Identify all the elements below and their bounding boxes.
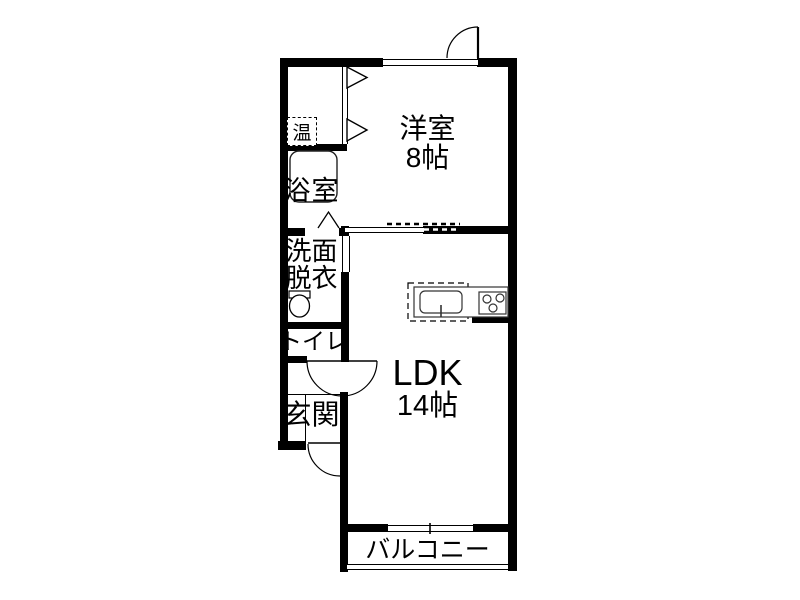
wall-kitchen-stub bbox=[472, 317, 517, 323]
wall-ldk-bottom-east bbox=[473, 524, 517, 532]
wall-western-room-ldk bbox=[423, 226, 508, 234]
floorplan-canvas: 温 bbox=[0, 0, 800, 600]
wall-top-west-segment bbox=[280, 58, 383, 67]
room-label-washroom: 洗面 脱衣 bbox=[281, 238, 342, 292]
ldk-size: 14帖 bbox=[397, 390, 458, 422]
western-room-name: 洋室 bbox=[399, 113, 455, 144]
washbasin-icon bbox=[289, 291, 310, 317]
washroom-name-line2: 脱衣 bbox=[285, 263, 337, 293]
wall-toilet-hall bbox=[280, 356, 307, 363]
kitchen-counter bbox=[408, 283, 508, 321]
western-room-size: 8帖 bbox=[406, 142, 450, 173]
washroom-name-line1: 洗面 bbox=[285, 236, 337, 266]
water-heater-label: 温 bbox=[292, 118, 311, 145]
wall-right-outer bbox=[508, 58, 517, 571]
room-label-ldk: LDK 14帖 bbox=[347, 354, 508, 422]
window-top-opening bbox=[383, 59, 478, 66]
room-label-toilet: トイレ bbox=[279, 330, 344, 354]
ldk-name: LDK bbox=[392, 352, 462, 393]
balcony-railing bbox=[347, 564, 508, 570]
stove-icon bbox=[479, 292, 506, 314]
entrance-step-line bbox=[283, 394, 341, 395]
balcony-sliding-window bbox=[388, 525, 473, 532]
wall-entrance-bottom bbox=[278, 441, 306, 450]
wall-bathroom-washroom-left bbox=[280, 228, 305, 236]
door-opening-washroom-ldk bbox=[342, 236, 350, 272]
bathroom-folding-door-icon bbox=[318, 212, 339, 228]
room-label-balcony: バルコニー bbox=[347, 537, 508, 563]
floorplan-symbols bbox=[0, 0, 800, 600]
sliding-door-track-western-ldk bbox=[345, 227, 424, 233]
closet-bifold-icon-top bbox=[347, 67, 367, 88]
entrance-door bbox=[308, 443, 340, 476]
entry-door-top bbox=[447, 27, 478, 58]
wall-ldk-bottom-west bbox=[340, 524, 388, 532]
room-label-bathroom: 浴室 bbox=[281, 177, 342, 205]
kitchen-sink-icon bbox=[420, 291, 462, 313]
kitchen-dashed-area bbox=[408, 283, 468, 321]
room-label-entrance: 玄関 bbox=[281, 400, 342, 429]
room-label-western: 洋室 8帖 bbox=[347, 114, 508, 172]
water-heater-box: 温 bbox=[287, 117, 317, 146]
